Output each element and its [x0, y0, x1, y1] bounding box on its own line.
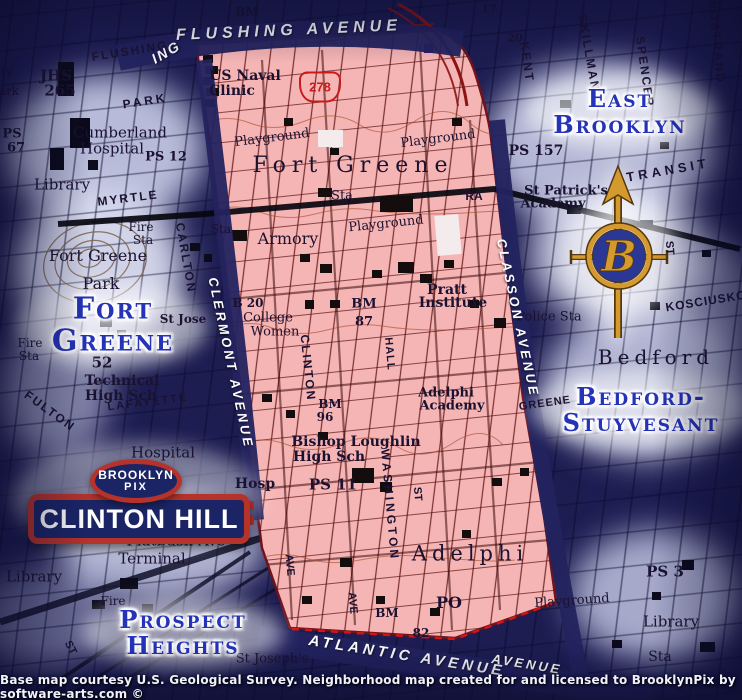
clinton-hill-neighborhood-map: B JHS265FLUSHINGPARKtyarkPS67CumberlandH…	[0, 0, 742, 700]
neighborhood-label-bedford-stuyvesant: Bedford-Stuyvesant	[563, 384, 720, 436]
brooklyn-pix-badge-line2: PIX	[124, 481, 148, 493]
clinton-hill-sign-text: CLINTON HILL	[40, 504, 239, 535]
brooklyn-pix-badge-line1: BROOKLYN	[98, 469, 174, 481]
neighborhood-label-east-brooklyn: EastBrooklyn	[553, 86, 686, 138]
credit-footer: Base map courtesy U.S. Geological Survey…	[0, 674, 742, 700]
neighborhood-labels-layer: EastBrooklynFortGreeneBedford-Stuyvesant…	[0, 0, 742, 700]
brooklyn-pix-badge: BROOKLYN PIX	[90, 459, 182, 503]
neighborhood-label-fort-greene: FortGreene	[52, 294, 174, 359]
neighborhood-label-prospect-heights: ProspectHeights	[119, 607, 246, 659]
